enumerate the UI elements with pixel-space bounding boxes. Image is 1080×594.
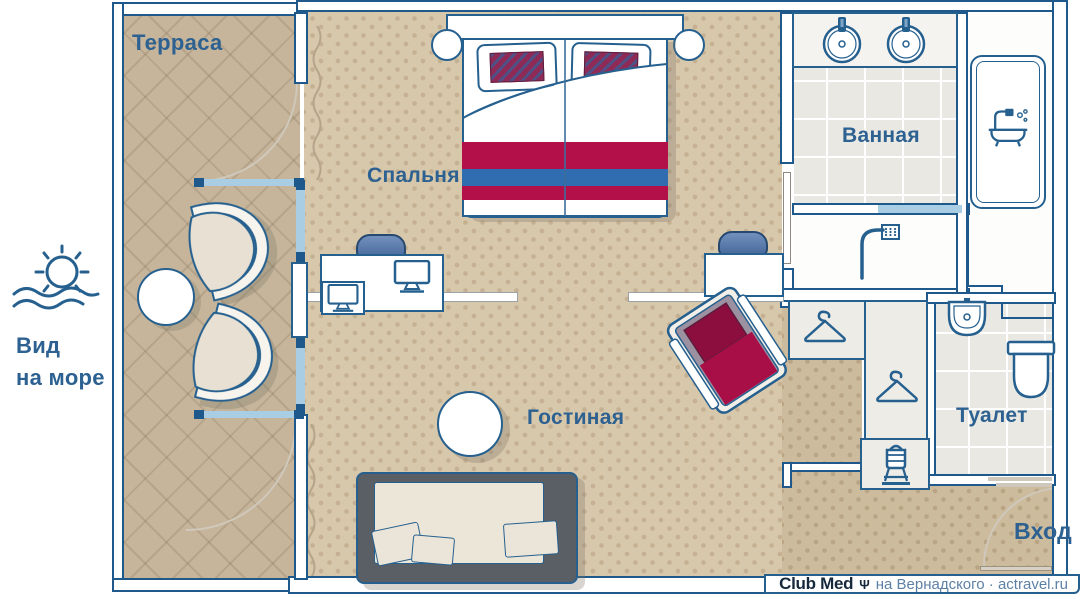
sun-over-sea-icon bbox=[10, 236, 106, 320]
headboard bbox=[446, 14, 684, 40]
wall bbox=[296, 0, 1068, 12]
room-label-bedroom: Спальня bbox=[367, 164, 460, 188]
sliding-glass-door bbox=[296, 190, 305, 252]
open-door-panel bbox=[291, 262, 308, 338]
terrace-table bbox=[137, 268, 195, 326]
toilet-sliding-door bbox=[988, 477, 1052, 481]
trident-icon: Ψ bbox=[859, 577, 870, 592]
room-label-bathroom: Ванная bbox=[842, 124, 920, 148]
tv-stand bbox=[321, 281, 365, 315]
toilet-icon bbox=[1006, 340, 1056, 402]
curtain-wave bbox=[308, 424, 315, 578]
glass-screen-frame bbox=[294, 410, 304, 419]
sink-icon bbox=[820, 16, 864, 64]
wall bbox=[294, 12, 308, 84]
room-label-living: Гостиная bbox=[527, 406, 624, 430]
wall bbox=[112, 2, 304, 16]
hanger-icon bbox=[874, 370, 920, 406]
toilet-sliding-door bbox=[996, 483, 1052, 487]
glass-screen-frame bbox=[294, 178, 304, 187]
room-label-entrance: Вход bbox=[1014, 518, 1072, 545]
tv-icon bbox=[326, 284, 360, 313]
wall bbox=[112, 578, 304, 592]
glass-door-frame bbox=[296, 338, 305, 348]
wall bbox=[294, 414, 308, 580]
nightstand bbox=[673, 29, 705, 61]
glass-screen-frame bbox=[194, 410, 204, 419]
sink-icon bbox=[884, 16, 928, 64]
monitor-icon bbox=[392, 260, 432, 294]
wall bbox=[1052, 0, 1068, 578]
sofa-pillow bbox=[411, 534, 455, 566]
glass-screen-frame bbox=[194, 178, 204, 187]
sofa-pillow bbox=[503, 520, 559, 558]
washbasin-icon bbox=[944, 298, 990, 340]
terrace-glass-screen bbox=[204, 179, 294, 186]
curtain-wave bbox=[314, 26, 321, 180]
footer-caption: на Вернадского · actravel.ru bbox=[876, 576, 1068, 593]
sliding-glass-door bbox=[296, 348, 305, 404]
wall bbox=[782, 462, 868, 472]
floor-plan: Вид на море Терраса Спальня Ванная Гости… bbox=[0, 0, 1080, 594]
room-label-terrace: Терраса bbox=[132, 30, 223, 56]
nightstand bbox=[431, 29, 463, 61]
sea-view-label: Вид на море bbox=[16, 330, 105, 394]
bed-seam bbox=[564, 40, 566, 216]
door-arc bbox=[198, 82, 297, 181]
sea-view-line2: на море bbox=[16, 362, 105, 394]
bathroom-sliding-door bbox=[783, 172, 791, 264]
luggage-rack-icon bbox=[878, 442, 914, 486]
hanger-icon bbox=[802, 310, 848, 346]
shower-glass-door bbox=[878, 205, 962, 213]
glass-door-frame bbox=[296, 252, 305, 262]
shower-icon bbox=[854, 222, 902, 282]
vanity-counter bbox=[792, 12, 958, 68]
bathtub-icon bbox=[986, 106, 1030, 150]
wall bbox=[782, 462, 792, 488]
clubmed-logo: Club Med bbox=[779, 574, 853, 594]
side-table bbox=[437, 391, 503, 457]
entry-door-leaf bbox=[980, 566, 1052, 571]
footer: Club Med Ψ на Вернадского · actravel.ru bbox=[764, 574, 1080, 594]
door-arc bbox=[186, 420, 296, 530]
room-label-toilet: Туалет bbox=[956, 404, 1028, 428]
wall bbox=[112, 2, 124, 580]
sea-view-line1: Вид bbox=[16, 330, 105, 362]
